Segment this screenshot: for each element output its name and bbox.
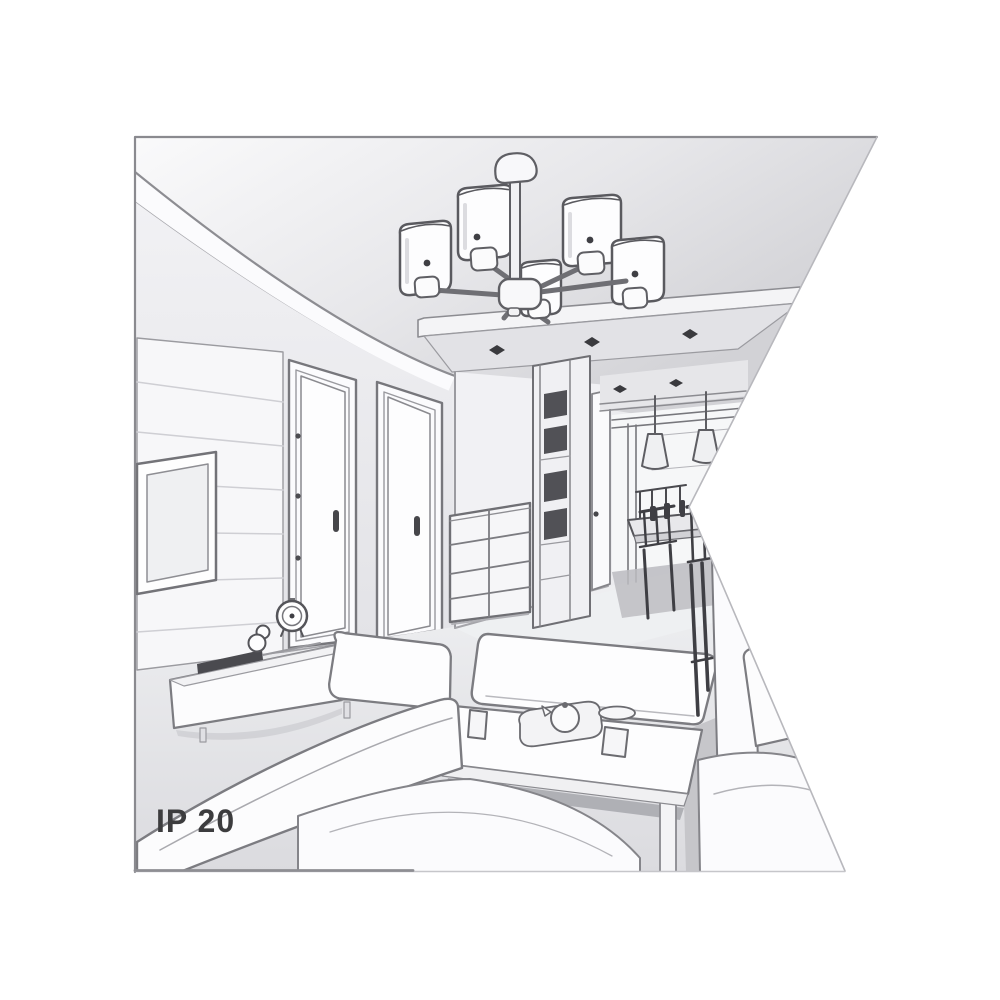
window-wall [612,402,744,584]
chandelier-canopy [495,153,536,183]
tv-screen [137,452,216,594]
teapot [551,704,579,732]
hallway-door [592,390,610,590]
teapot-lid [562,702,568,708]
product-illustration: IP 20 [0,0,1000,1000]
drawer-chest [450,503,530,624]
hub-bracket [508,308,520,316]
scene [135,137,880,872]
cup [468,710,487,739]
chaise [698,753,845,872]
interior-door-2 [377,382,442,648]
tv-panel-wall [137,338,283,670]
room-sketch [0,0,1000,1000]
hallway [450,356,610,628]
chandelier-stem [510,180,520,282]
ip-rating-label: IP 20 [156,803,235,840]
plate [599,707,635,720]
wardrobe [533,356,590,628]
console-leg [344,702,350,718]
table-leg [660,800,676,872]
door-handle [333,510,339,532]
door-handle [414,516,420,536]
door-handle [593,511,598,516]
console-leg [200,728,206,742]
chandelier-hub [499,279,541,309]
cup [602,727,628,757]
